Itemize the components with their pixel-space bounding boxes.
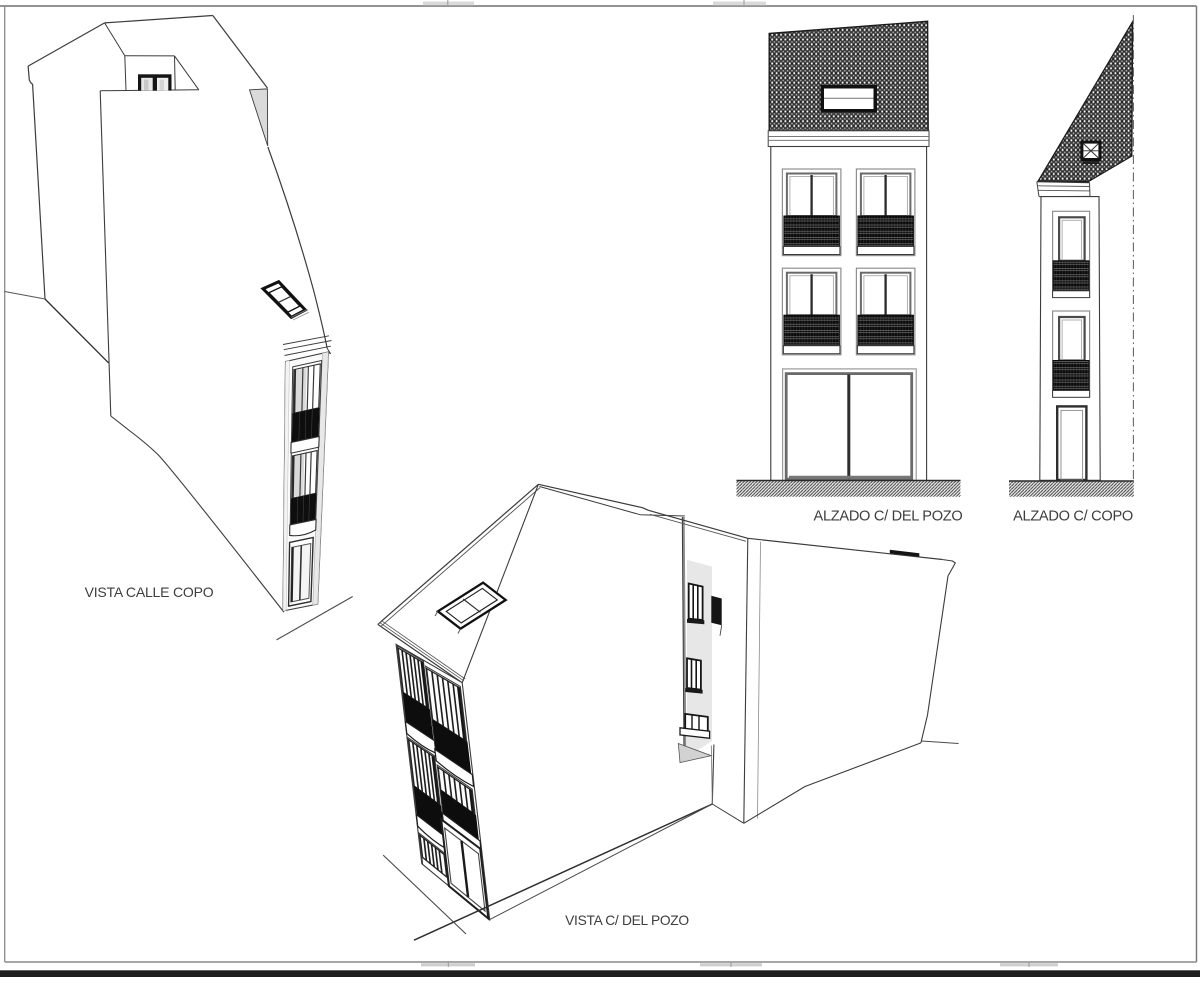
svg-text:VISTA C/ DEL POZO: VISTA C/ DEL POZO: [565, 913, 689, 928]
svg-text:ALZADO C/ DEL POZO: ALZADO C/ DEL POZO: [814, 509, 963, 525]
svg-text:VISTA CALLE COPO: VISTA CALLE COPO: [85, 584, 214, 600]
svg-text:ALZADO C/ COPO: ALZADO C/ COPO: [1013, 509, 1133, 525]
